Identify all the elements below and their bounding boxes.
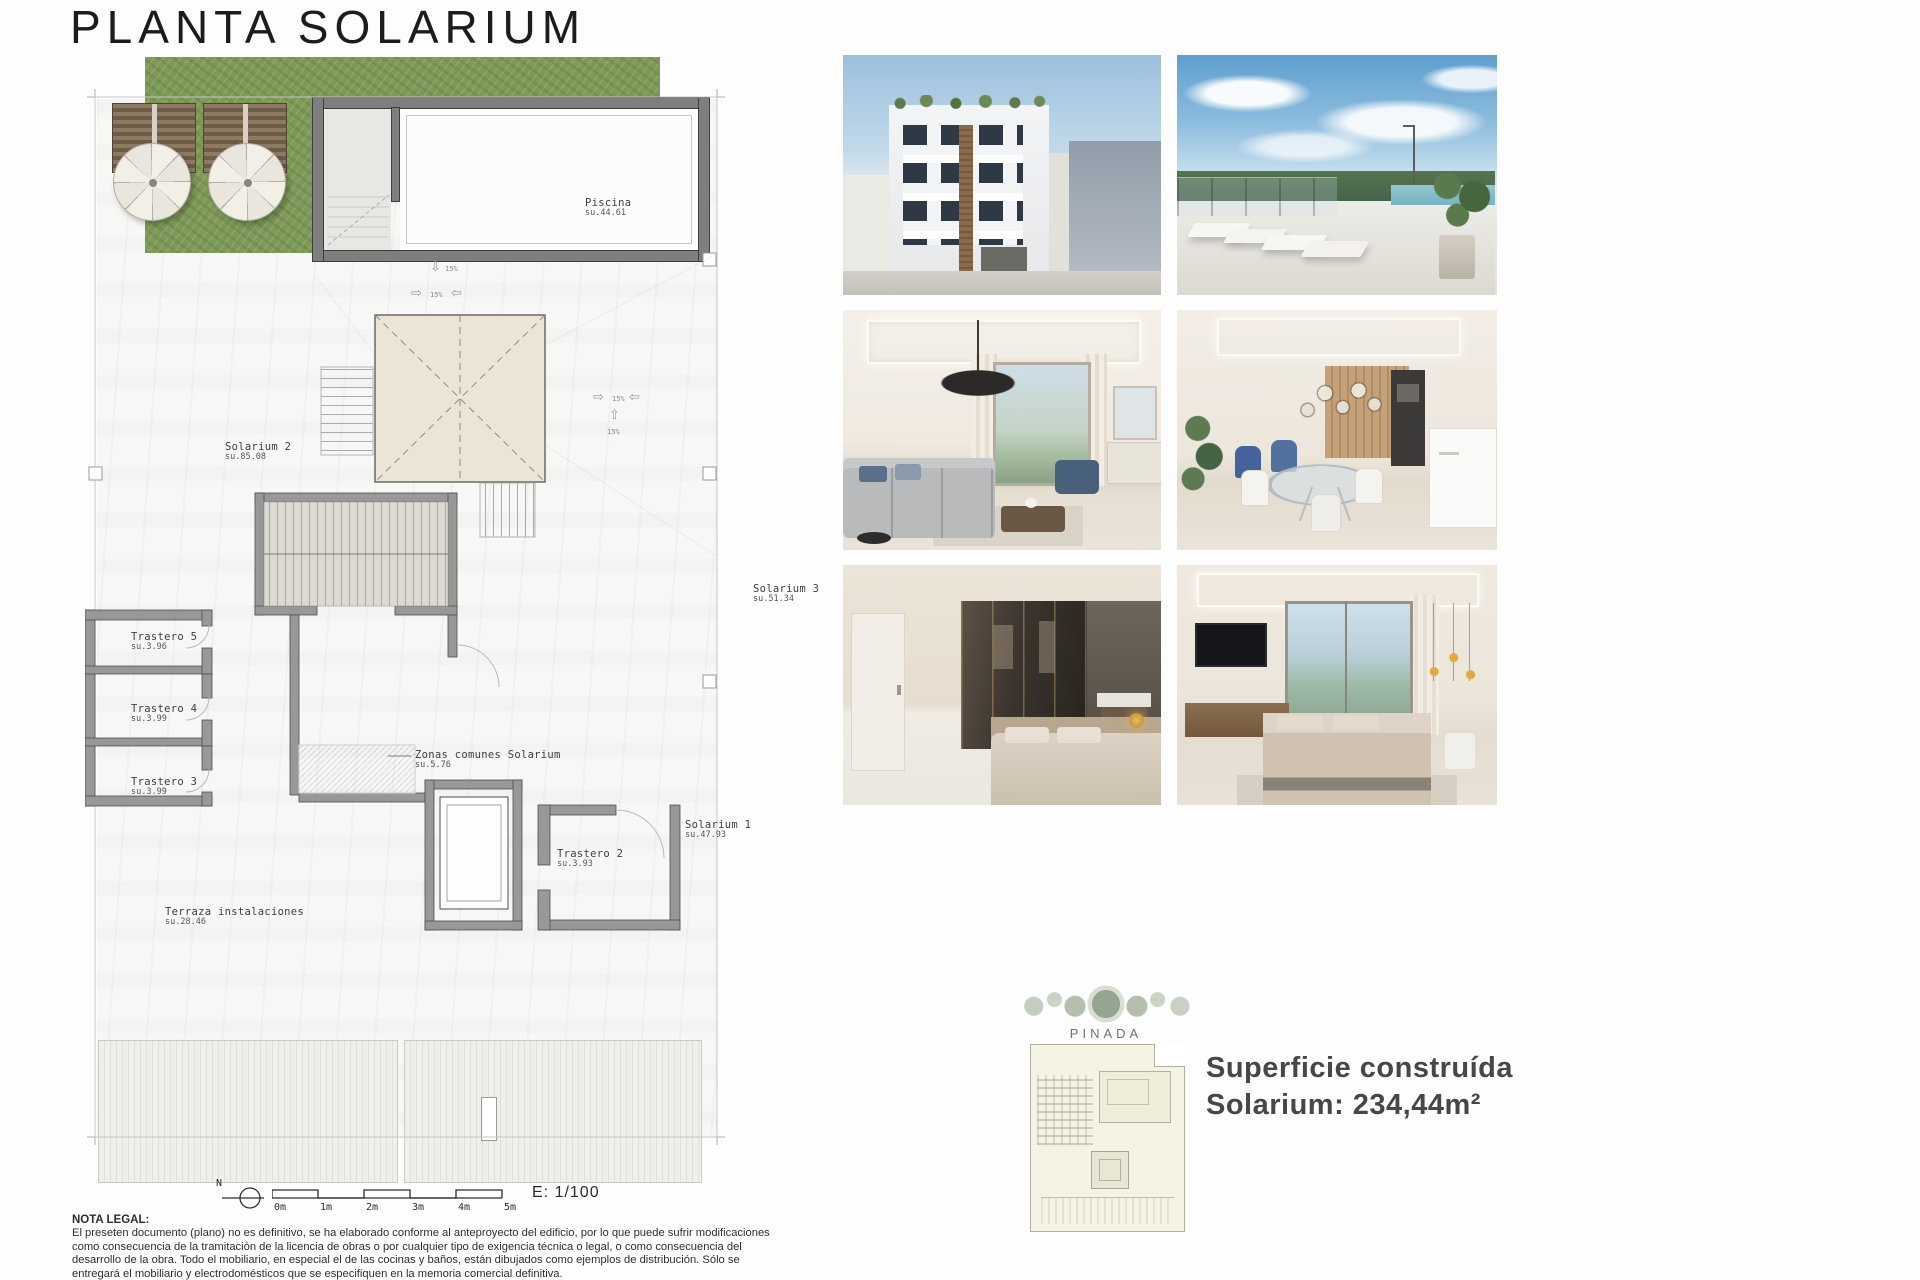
plan-sheet: PLANTA SOLARIUM: [0, 0, 1920, 1280]
room-label-trastero2: Trastero 2 su.3.93: [557, 848, 623, 870]
slope-label: 15%: [612, 396, 625, 403]
room-label-piscina: Piscina su.44.61: [585, 197, 631, 219]
photo-gallery: [843, 55, 1497, 805]
north-compass-icon: [222, 1182, 268, 1214]
slope-arrow-up-icon: ⇧: [609, 409, 620, 422]
room-label-trastero3: Trastero 3 su.3.99: [131, 776, 197, 798]
legal-note: NOTA LEGAL: El preseten documento (plano…: [72, 1214, 772, 1280]
photo-living-room: [843, 310, 1161, 550]
slope-label: 15%: [607, 429, 620, 436]
scale-tick: 3m: [412, 1202, 424, 1213]
room-label-solarium3: Solarium 3 su.51.34: [753, 583, 819, 605]
photo-dining-kitchen: [1177, 310, 1497, 550]
photo-bedroom-window: [1177, 565, 1497, 805]
room-label-solarium1: Solarium 1 su.47.93: [685, 819, 751, 841]
room-label-trastero4: Trastero 4 su.3.99: [131, 703, 197, 725]
photo-rooftop-pool-terrace: [1177, 55, 1497, 295]
slope-label: 15%: [430, 292, 443, 299]
slope-arrow-right-icon: ⇨: [411, 287, 422, 300]
room-label-zonas-comunes: Zonas comunes Solarium su.5.76: [415, 749, 561, 771]
scale-tick: 0m: [274, 1202, 286, 1213]
summary-line1: Superficie construída: [1206, 1050, 1513, 1087]
legal-body: El preseten documento (plano) no es defi…: [72, 1227, 772, 1280]
scale-tick: 1m: [320, 1202, 332, 1213]
built-area-summary: Superficie construída Solarium: 234,44m²: [1206, 1050, 1513, 1124]
slope-arrow-down-icon: ⇩: [430, 261, 441, 274]
room-label-terraza: Terraza instalaciones su.28.46: [165, 906, 304, 928]
legal-heading: NOTA LEGAL:: [72, 1214, 772, 1226]
photo-bedroom-dressing: [843, 565, 1161, 805]
scale-tick: 4m: [458, 1202, 470, 1213]
scale-tick: 5m: [504, 1202, 516, 1213]
slope-arrow-left-icon: ⇦: [451, 287, 462, 300]
photo-building-exterior: [843, 55, 1161, 295]
slope-arrow-right-icon: ⇨: [593, 391, 604, 404]
pinada-garland-logo-icon: [1020, 982, 1192, 1026]
brand-name: PINADA: [1020, 1026, 1192, 1041]
scale-bar: [272, 1184, 506, 1202]
scale-ratio: E: 1/100: [532, 1184, 600, 1202]
site-plan-thumbnail: [1030, 1044, 1185, 1232]
scale-tick: 2m: [366, 1202, 378, 1213]
slope-arrow-left-icon: ⇦: [629, 391, 640, 404]
room-label-solarium2: Solarium 2 su.85.08: [225, 441, 291, 463]
slope-label: 15%: [445, 266, 458, 273]
summary-line2: Solarium: 234,44m²: [1206, 1087, 1513, 1124]
floor-plan: ⇩ 15% ⇨ 15% ⇦ ⇨ 15% ⇦ ⇧ 15% Piscina su.4…: [85, 45, 745, 1185]
room-label-trastero5: Trastero 5 su.3.96: [131, 631, 197, 653]
plan-linework: [85, 45, 745, 1185]
